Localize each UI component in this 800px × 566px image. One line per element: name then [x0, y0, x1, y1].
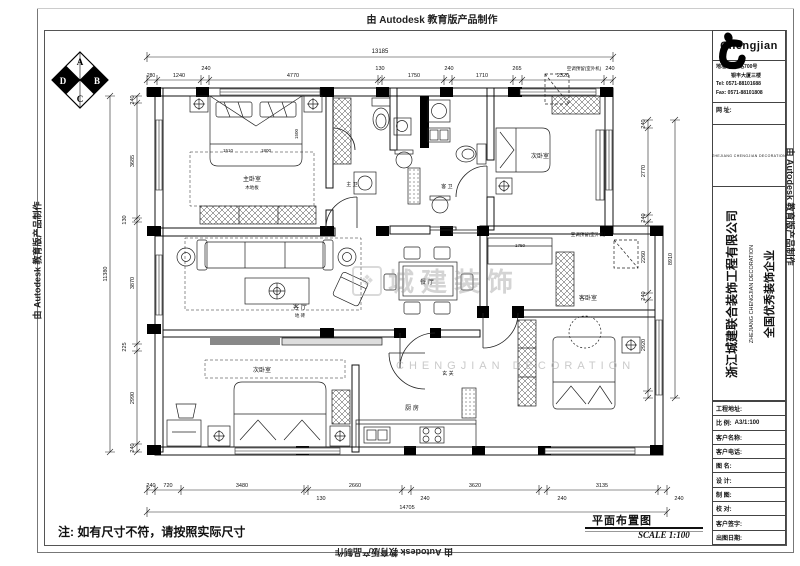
svg-text:3135: 3135 [596, 483, 608, 489]
svg-text:3685: 3685 [130, 155, 136, 167]
fax: Fax: 0571-88101808 [716, 89, 782, 98]
title-block: Chengjian 地址: 古墩路700号 银丰大厦三楼 Tel: 0571-8… [712, 30, 786, 545]
drawing-sheet: 由 Autodesk 教育版产品制作 由 Autodesk 教育版产品制作 由 … [0, 0, 800, 566]
svg-text:2320: 2320 [557, 73, 569, 79]
svg-text:240: 240 [444, 66, 453, 72]
svg-text:240: 240 [674, 496, 683, 502]
svg-text:客卧室: 客卧室 [579, 294, 597, 302]
compass-letter-c: C [77, 94, 84, 104]
company-logo-box: ZHEJIANG CHENGJIAN DECORATION [713, 125, 785, 187]
svg-text:240: 240 [420, 496, 429, 502]
living-room [177, 238, 382, 345]
title-block-row: 制 图: [713, 487, 785, 501]
bedroom-bottom-right [488, 238, 640, 409]
svg-text:木地板: 木地板 [245, 184, 259, 191]
furniture [167, 74, 640, 447]
svg-text:1750: 1750 [515, 243, 526, 248]
svg-text:次卧室: 次卧室 [531, 152, 549, 160]
svg-text:2260: 2260 [641, 251, 647, 263]
title-underline [585, 527, 703, 529]
svg-text:240: 240 [641, 213, 647, 222]
svg-text:厨 房: 厨 房 [405, 404, 419, 412]
bathroom-fixtures [333, 98, 486, 213]
svg-text:240: 240 [130, 95, 136, 104]
floor-plan: 1318528012402404770130175024017102652320… [0, 0, 800, 566]
title-block-row: 客户签字: [713, 515, 785, 529]
kitchen-entry [356, 388, 476, 447]
svg-text:130: 130 [316, 496, 325, 502]
website-label: 网 址: [713, 103, 785, 125]
svg-text:240: 240 [605, 66, 614, 72]
title-block-row: 工程地址: [713, 401, 785, 415]
dimension-labels: 1318528012402404770130175024017102652320… [103, 49, 684, 511]
svg-text:1710: 1710 [476, 73, 488, 79]
svg-text:3620: 3620 [469, 483, 481, 489]
svg-text:240: 240 [641, 119, 647, 128]
svg-text:8910: 8910 [668, 253, 674, 265]
svg-text:1500: 1500 [294, 128, 299, 139]
svg-text:11380: 11380 [103, 267, 109, 282]
svg-text:2990: 2990 [130, 392, 136, 404]
svg-text:130: 130 [375, 66, 384, 72]
company-honor: 全国优秀装饰企业 [763, 189, 777, 399]
master-bed [190, 96, 322, 224]
walls [147, 88, 663, 455]
svg-text:1240: 1240 [173, 73, 185, 79]
svg-text:130: 130 [122, 215, 128, 224]
drawing-title: 平面布置图 [592, 512, 652, 528]
wall-columns [147, 87, 663, 455]
svg-text:空调预留(室外机): 空调预留(室外机) [567, 65, 602, 72]
bedroom-top-right [496, 96, 604, 200]
title-block-row: 图 名: [713, 458, 785, 472]
title-block-rows: 工程地址:比 例:A3/1:100客户名称:客户电话:图 名:设 计:制 图:校… [713, 401, 785, 544]
company-name-en: ZHEJIANG CHENGJIAN DECORATION [745, 189, 759, 399]
svg-text:13185: 13185 [372, 49, 389, 55]
company-name-cn: 浙江城建联合装饰工程有限公司 [725, 189, 739, 399]
compass-letter-a: A [77, 57, 84, 67]
svg-text:14705: 14705 [399, 505, 414, 511]
svg-text:空调预留(室外机): 空调预留(室外机) [571, 231, 606, 238]
svg-text:餐 厅: 餐 厅 [420, 278, 434, 286]
dimension-note: 注: 如有尺寸不符，请按照实际尺寸 [58, 523, 245, 540]
svg-text:2660: 2660 [349, 483, 361, 489]
svg-text:地 砖: 地 砖 [295, 312, 306, 319]
svg-text:客 卫: 客 卫 [441, 183, 452, 190]
company-logo-icon [713, 31, 751, 71]
compass-rose: A B C D [52, 52, 108, 108]
svg-text:2770: 2770 [641, 165, 647, 177]
svg-text:240: 240 [641, 291, 647, 300]
svg-text:240: 240 [130, 443, 136, 452]
svg-text:主卧室: 主卧室 [243, 175, 261, 183]
svg-text:客 厅: 客 厅 [293, 303, 307, 311]
svg-text:280: 280 [147, 73, 156, 79]
address-line2: 银丰大厦三楼 [716, 72, 782, 81]
title-block-row: 出图日期: [713, 530, 785, 544]
svg-text:1800: 1800 [261, 148, 272, 153]
svg-text:次卧室: 次卧室 [253, 366, 271, 374]
title-block-row: 客户电话: [713, 444, 785, 458]
logo-caption: ZHEJIANG CHENGJIAN DECORATION [712, 154, 786, 158]
compass-letter-b: B [94, 76, 100, 86]
svg-text:1510: 1510 [223, 148, 234, 153]
svg-text:3870: 3870 [130, 277, 136, 289]
svg-text:4770: 4770 [287, 73, 299, 79]
svg-text:240: 240 [557, 496, 566, 502]
svg-text:1750: 1750 [408, 73, 420, 79]
svg-text:2920: 2920 [641, 339, 647, 351]
scale-label: SCALE 1:100 [638, 530, 690, 540]
svg-text:玄 关: 玄 关 [442, 370, 453, 377]
title-block-row: 比 例:A3/1:100 [713, 415, 785, 429]
compass-letter-d: D [60, 76, 67, 86]
company-name-box: 浙江城建联合装饰工程有限公司 ZHEJIANG CHENGJIAN DECORA… [713, 187, 785, 401]
svg-text:主 卫: 主 卫 [346, 181, 357, 188]
title-block-row: 设 计: [713, 472, 785, 486]
title-block-row: 校 对: [713, 501, 785, 515]
svg-text:265: 265 [512, 66, 521, 72]
svg-text:225: 225 [122, 342, 128, 351]
svg-text:240: 240 [146, 483, 155, 489]
svg-text:240: 240 [201, 66, 210, 72]
svg-text:720: 720 [163, 483, 172, 489]
telephone: Tel: 0571-88101688 [716, 80, 782, 89]
doors [326, 128, 518, 389]
title-block-row: 客户名称: [713, 430, 785, 444]
svg-text:3480: 3480 [236, 483, 248, 489]
